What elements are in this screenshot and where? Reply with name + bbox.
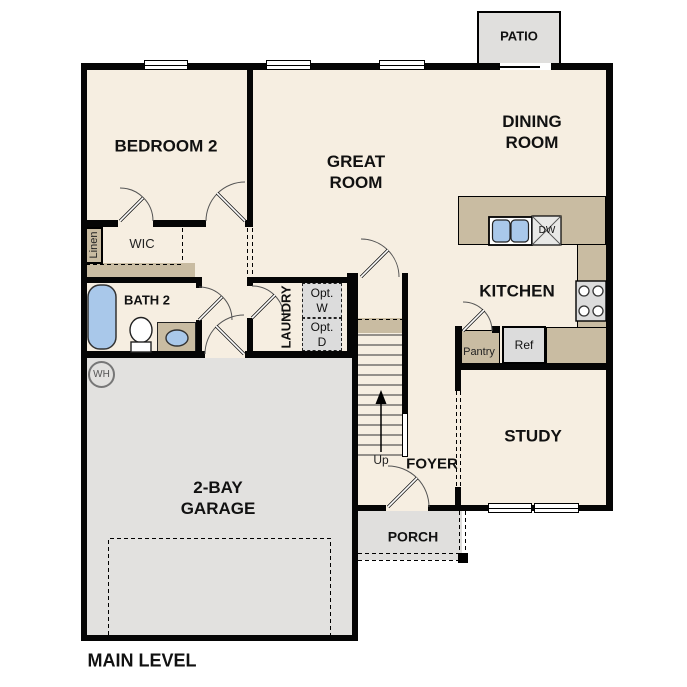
- wall-pantry-right-stub: [492, 326, 500, 333]
- wall-stair-right: [402, 273, 408, 415]
- wall-bedroom2-bottom-c: [245, 220, 253, 227]
- kitchen-label: KITCHEN: [479, 281, 555, 302]
- wall-study-left-top-stub: [455, 370, 461, 391]
- wall-bedroom2-bottom-b: [153, 220, 206, 227]
- kitchen-counter-bottom: [546, 327, 606, 364]
- study-label: STUDY: [504, 426, 562, 447]
- opt-dryer-box: Opt. D: [302, 318, 342, 351]
- kitchen-counter-top: [458, 196, 606, 245]
- stair-landing-strip: [358, 318, 402, 333]
- patio-sliding-door-gap: [500, 63, 551, 70]
- wall-pantry-left: [455, 326, 462, 363]
- wall-study-left-bottom-stub: [455, 487, 461, 505]
- wall-bath2-right-a: [196, 283, 202, 288]
- foyer-label: FOYER: [406, 454, 458, 475]
- linen-label: Linen: [87, 232, 101, 259]
- kitchen-counter-right: [577, 245, 606, 327]
- great-room-label: GREAT ROOM: [327, 151, 385, 193]
- wall-exterior-top-right: [551, 63, 613, 70]
- wall-garage-top-right: [245, 351, 358, 358]
- wall-garage-top-left: [81, 351, 205, 358]
- dining-room-label: DINING ROOM: [502, 111, 562, 153]
- porch-label: PORCH: [388, 527, 439, 548]
- laundry-label: LAUNDRY: [279, 285, 294, 348]
- wall-bedroom2-right: [247, 69, 253, 227]
- refrigerator-box: Ref: [502, 326, 546, 364]
- window-greatroom-2: [379, 60, 425, 70]
- wall-laundry-left-a: [247, 283, 253, 286]
- pantry-label: Pantry: [463, 345, 495, 359]
- wic-closet-strip: [85, 263, 195, 278]
- bath2-label: BATH 2: [124, 293, 170, 308]
- wall-kitchen-bottom: [455, 363, 613, 370]
- wall-exterior-right: [606, 63, 613, 511]
- wall-bedroom2-bottom-a: [86, 220, 118, 227]
- bedroom2-label: BEDROOM 2: [115, 136, 218, 157]
- wall-garage-right: [352, 351, 358, 641]
- bath-vanity-counter: [157, 322, 196, 352]
- up-label: Up: [373, 453, 388, 467]
- opt-washer-box: Opt. W: [302, 283, 342, 318]
- patio-label: PATIO: [500, 29, 538, 44]
- wall-garage-bottom: [81, 635, 358, 641]
- window-greatroom-1: [266, 60, 311, 70]
- floor-plan: Opt. W Opt. D Ref WH PATIO BEDROOM 2 GRE…: [0, 0, 687, 687]
- dw-label: DW: [539, 224, 556, 238]
- wic-label: WIC: [129, 237, 154, 251]
- wall-bath2-right-b: [196, 320, 202, 351]
- wall-stair-left-block: [347, 273, 358, 358]
- water-heater-icon: WH: [88, 361, 115, 388]
- window-study-1: [488, 503, 532, 513]
- wall-bath2-top: [81, 277, 202, 283]
- garage-label: 2-BAY GARAGE: [181, 477, 256, 519]
- stair-railing: [402, 413, 408, 457]
- window-bedroom2: [144, 60, 188, 70]
- plan-title: MAIN LEVEL: [87, 651, 196, 672]
- window-study-2: [534, 503, 579, 513]
